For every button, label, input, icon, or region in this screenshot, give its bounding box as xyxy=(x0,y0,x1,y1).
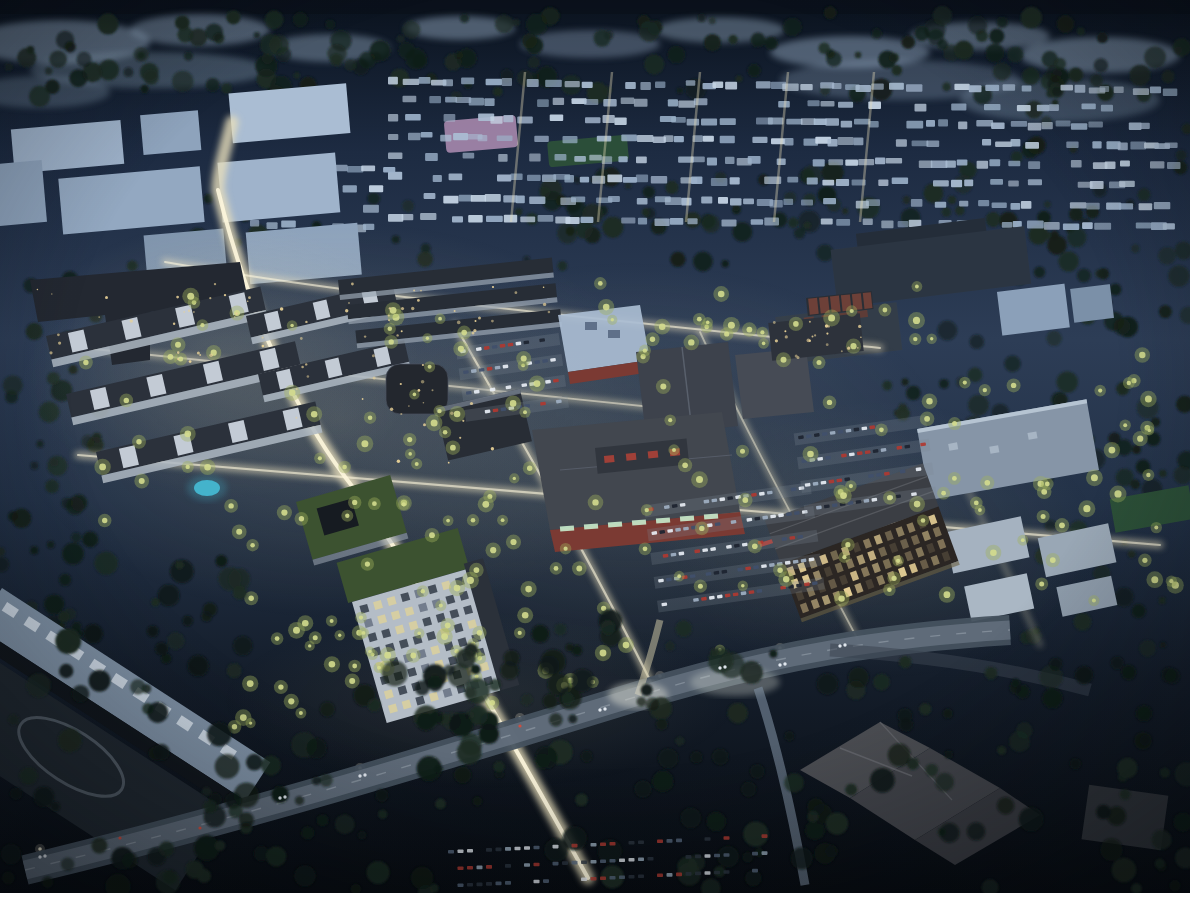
rendering-canvas: Aerial rendering at dusk of a master-pla… xyxy=(0,0,1190,893)
aerial-rendering-photo: Aerial rendering at dusk of a master-pla… xyxy=(0,0,1190,893)
page: Aerial rendering at dusk of a master-pla… xyxy=(0,0,1200,900)
vignette xyxy=(0,0,1190,893)
